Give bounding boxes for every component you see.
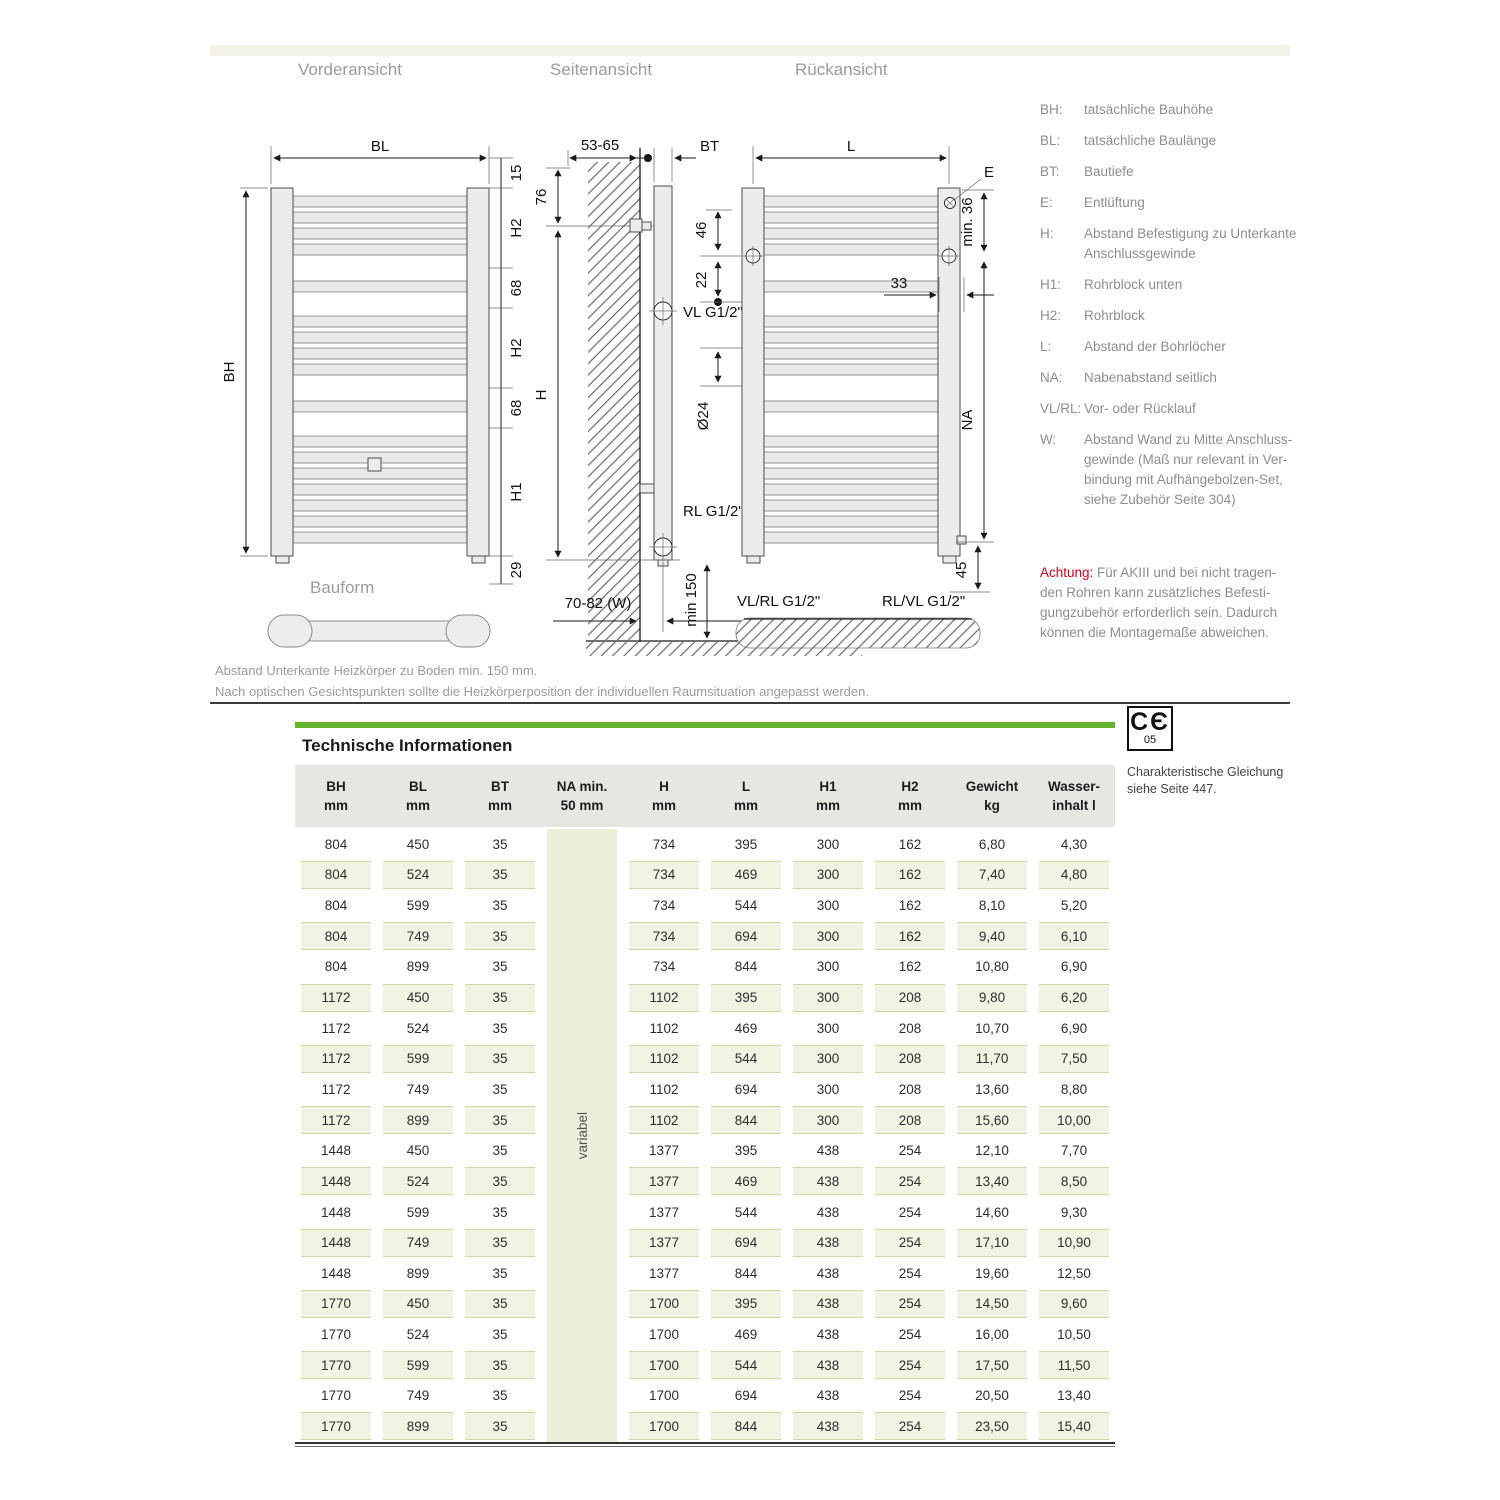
cell-l: 395 xyxy=(711,831,781,857)
legend-key: H1: xyxy=(1040,275,1084,295)
cell-h1: 300 xyxy=(793,954,863,980)
cell-na-spacer xyxy=(547,893,617,919)
cell-wasserinhalt: 7,50 xyxy=(1039,1045,1109,1073)
technical-info-table: Technische Informationen BH mm BL mm BT … xyxy=(295,722,1115,1447)
column-header-name: H2 xyxy=(869,777,951,796)
table-accent-bar xyxy=(295,722,1115,728)
cell-l: 694 xyxy=(711,1229,781,1257)
ce-number: 05 xyxy=(1129,735,1171,746)
cell-bl: 749 xyxy=(383,1229,453,1257)
dim-label-68-bot: 68 xyxy=(508,400,525,417)
cell-bt: 35 xyxy=(465,893,535,919)
legend-text: Abstand der Bohrlöcher xyxy=(1084,337,1226,357)
cell-h1: 300 xyxy=(793,1045,863,1073)
dim-label-53-65: 53-65 xyxy=(581,137,619,154)
table-title: Technische Informationen xyxy=(295,736,1115,756)
cell-bl: 749 xyxy=(383,1383,453,1409)
cell-h1: 438 xyxy=(793,1383,863,1409)
table-row: 804 899 35 734 844 300 162 10,80 6,90 xyxy=(295,952,1115,983)
column-header: Wasser- inhalt l xyxy=(1033,765,1115,827)
column-header-unit: mm xyxy=(623,796,705,815)
legend-item: NA: Nabenabstand seitlich xyxy=(1040,368,1305,388)
legend-item: BT: Bautiefe xyxy=(1040,162,1305,182)
cell-wasserinhalt: 9,30 xyxy=(1039,1199,1109,1225)
cell-na-spacer xyxy=(547,985,617,1011)
cell-bl: 524 xyxy=(383,1167,453,1195)
column-header-name: BL xyxy=(377,777,459,796)
column-header-unit: mm xyxy=(295,796,377,815)
cell-bt: 35 xyxy=(465,1229,535,1257)
cell-bt: 35 xyxy=(465,831,535,857)
cell-gewicht: 10,80 xyxy=(957,954,1027,980)
cell-na-spacer xyxy=(547,1230,617,1256)
dim-label-min36: min. 36 xyxy=(959,197,976,246)
legend-key: VL/RL: xyxy=(1040,399,1084,419)
dim-label-bl: BL xyxy=(371,138,389,155)
cell-h2: 254 xyxy=(875,1199,945,1225)
legend-item: BH: tatsächliche Bauhöhe xyxy=(1040,100,1305,120)
na-variable-band: variabel xyxy=(547,829,617,1442)
cell-gewicht: 15,60 xyxy=(957,1106,1027,1134)
label-vent-e: E xyxy=(984,164,994,181)
cell-h2: 162 xyxy=(875,861,945,889)
cell-h1: 300 xyxy=(793,1076,863,1102)
cell-bh: 1172 xyxy=(301,1015,371,1041)
column-header-unit: 50 mm xyxy=(541,796,623,815)
cell-bt: 35 xyxy=(465,1260,535,1286)
dim-label-w: 70-82 (W) xyxy=(565,595,632,612)
cell-bh: 1172 xyxy=(301,984,371,1012)
column-header-name: H xyxy=(623,777,705,796)
cell-bh: 1448 xyxy=(301,1167,371,1195)
datasheet-page: Vorderansicht Seitenansicht Rückansicht xyxy=(0,0,1500,1500)
cell-na-spacer xyxy=(547,1076,617,1102)
cell-gewicht: 17,50 xyxy=(957,1351,1027,1379)
cell-bh: 1172 xyxy=(301,1076,371,1102)
cell-bh: 1448 xyxy=(301,1229,371,1257)
cell-wasserinhalt: 15,40 xyxy=(1039,1412,1109,1440)
column-header: H1 mm xyxy=(787,765,869,827)
table-row: 1770 524 35 1700 469 438 254 16,00 10,50 xyxy=(295,1319,1115,1350)
column-header-name: BH xyxy=(295,777,377,796)
table-row: 1172 450 35 1102 395 300 208 9,80 6,20 xyxy=(295,982,1115,1013)
cell-h1: 300 xyxy=(793,922,863,950)
cell-bl: 749 xyxy=(383,1076,453,1102)
legend-key: H: xyxy=(1040,224,1084,264)
cell-h: 1102 xyxy=(629,1106,699,1134)
cell-l: 544 xyxy=(711,893,781,919)
cell-gewicht: 13,40 xyxy=(957,1167,1027,1195)
cell-h1: 300 xyxy=(793,1015,863,1041)
table-row: 1770 450 35 1700 395 438 254 14,50 9,60 xyxy=(295,1289,1115,1320)
cell-h: 1700 xyxy=(629,1412,699,1440)
column-header-name: NA min. xyxy=(541,777,623,796)
cell-h1: 438 xyxy=(793,1199,863,1225)
cell-wasserinhalt: 9,60 xyxy=(1039,1290,1109,1318)
cell-h: 1377 xyxy=(629,1138,699,1164)
cell-wasserinhalt: 6,90 xyxy=(1039,954,1109,980)
column-header-unit: mm xyxy=(377,796,459,815)
cell-bh: 1770 xyxy=(301,1412,371,1440)
cell-l: 469 xyxy=(711,1167,781,1195)
cell-gewicht: 14,60 xyxy=(957,1199,1027,1225)
cell-bh: 804 xyxy=(301,831,371,857)
cell-h: 1377 xyxy=(629,1199,699,1225)
cell-bh: 1172 xyxy=(301,1045,371,1073)
cell-na-spacer xyxy=(547,1383,617,1409)
table-row: 1770 599 35 1700 544 438 254 17,50 11,50 xyxy=(295,1350,1115,1381)
cell-bt: 35 xyxy=(465,1351,535,1379)
cell-bl: 450 xyxy=(383,1290,453,1318)
warning-label: Achtung: xyxy=(1040,565,1093,580)
cell-na-spacer xyxy=(547,1322,617,1348)
cell-l: 694 xyxy=(711,1076,781,1102)
legend-key: BL: xyxy=(1040,131,1084,151)
cell-gewicht: 23,50 xyxy=(957,1412,1027,1440)
column-header-name: H1 xyxy=(787,777,869,796)
cell-wasserinhalt: 11,50 xyxy=(1039,1351,1109,1379)
column-header: Gewicht kg xyxy=(951,765,1033,827)
warning-note: Achtung: Für AKIII und bei nicht tragen-… xyxy=(1040,543,1302,643)
rear-view-drawing: L E 46 22 xyxy=(693,138,994,648)
cell-h2: 162 xyxy=(875,922,945,950)
cell-bl: 599 xyxy=(383,1199,453,1225)
column-header-name: Wasser- xyxy=(1033,777,1115,796)
column-header-name: BT xyxy=(459,777,541,796)
dim-label-29: 29 xyxy=(508,562,525,579)
cell-gewicht: 19,60 xyxy=(957,1260,1027,1286)
cell-l: 844 xyxy=(711,954,781,980)
cell-h: 1700 xyxy=(629,1322,699,1348)
cell-bh: 1770 xyxy=(301,1351,371,1379)
cell-h1: 300 xyxy=(793,861,863,889)
table-row: 1172 599 35 1102 544 300 208 11,70 7,50 xyxy=(295,1043,1115,1074)
ce-letters: CЄ xyxy=(1129,709,1171,735)
cell-l: 395 xyxy=(711,1138,781,1164)
cell-bl: 524 xyxy=(383,861,453,889)
column-header: H mm xyxy=(623,765,705,827)
cell-h: 1102 xyxy=(629,1076,699,1102)
column-header-unit: mm xyxy=(705,796,787,815)
dim-label-dia24: Ø24 xyxy=(695,402,712,430)
legend: BH: tatsächliche Bauhöhe BL: tatsächlich… xyxy=(1040,100,1305,521)
table-row: 804 524 35 734 469 300 162 7,40 4,80 xyxy=(295,860,1115,891)
column-header-unit: mm xyxy=(869,796,951,815)
table-rows: 804 450 35 734 395 300 162 6,80 4,30 804 xyxy=(295,829,1115,1442)
cell-l: 544 xyxy=(711,1199,781,1225)
cell-h1: 300 xyxy=(793,1106,863,1134)
legend-text: Rohrblock unten xyxy=(1084,275,1182,295)
cell-bt: 35 xyxy=(465,1199,535,1225)
cell-h: 1102 xyxy=(629,1045,699,1073)
cell-h: 1700 xyxy=(629,1290,699,1318)
cell-na-spacer xyxy=(547,923,617,949)
cell-h1: 300 xyxy=(793,893,863,919)
cell-gewicht: 6,80 xyxy=(957,831,1027,857)
column-header: BL mm xyxy=(377,765,459,827)
cell-wasserinhalt: 4,30 xyxy=(1039,831,1109,857)
cell-bh: 1448 xyxy=(301,1138,371,1164)
dim-label-l: L xyxy=(847,138,855,155)
dim-label-bh: BH xyxy=(221,362,238,383)
cell-bt: 35 xyxy=(465,1290,535,1318)
cell-l: 694 xyxy=(711,922,781,950)
footnote-line-2: Nach optischen Gesichtspunkten sollte di… xyxy=(215,681,869,702)
column-header: H2 mm xyxy=(869,765,951,827)
dim-label-76: 76 xyxy=(533,189,550,206)
cell-na-spacer xyxy=(547,1168,617,1194)
cell-gewicht: 9,40 xyxy=(957,922,1027,950)
cell-wasserinhalt: 6,10 xyxy=(1039,922,1109,950)
cell-l: 544 xyxy=(711,1351,781,1379)
cell-h2: 254 xyxy=(875,1412,945,1440)
cell-bh: 804 xyxy=(301,954,371,980)
cell-gewicht: 14,50 xyxy=(957,1290,1027,1318)
column-header-name: L xyxy=(705,777,787,796)
cell-l: 395 xyxy=(711,1290,781,1318)
cell-bl: 599 xyxy=(383,1045,453,1073)
cell-gewicht: 11,70 xyxy=(957,1045,1027,1073)
cell-na-spacer xyxy=(547,954,617,980)
dim-label-46: 46 xyxy=(693,222,710,239)
cell-h: 1102 xyxy=(629,984,699,1012)
cell-na-spacer xyxy=(547,1352,617,1378)
table-row: 1172 749 35 1102 694 300 208 13,60 8,80 xyxy=(295,1074,1115,1105)
cell-bl: 599 xyxy=(383,893,453,919)
cell-h1: 438 xyxy=(793,1138,863,1164)
cell-bl: 524 xyxy=(383,1322,453,1348)
cell-h1: 438 xyxy=(793,1322,863,1348)
ce-caption: Charakteristische Gleichung siehe Seite … xyxy=(1127,764,1307,798)
cell-gewicht: 17,10 xyxy=(957,1229,1027,1257)
table-row: 804 599 35 734 544 300 162 8,10 5,20 xyxy=(295,890,1115,921)
table-body: variabel 804 450 35 734 395 300 162 6,80 xyxy=(295,829,1115,1444)
dim-label-15: 15 xyxy=(508,165,525,182)
cell-h: 1377 xyxy=(629,1229,699,1257)
cell-wasserinhalt: 8,80 xyxy=(1039,1076,1109,1102)
cell-h: 1102 xyxy=(629,1015,699,1041)
table-row: 1448 599 35 1377 544 438 254 14,60 9,30 xyxy=(295,1197,1115,1228)
cell-h2: 254 xyxy=(875,1351,945,1379)
legend-text: Nabenabstand seitlich xyxy=(1084,368,1217,388)
cell-l: 544 xyxy=(711,1045,781,1073)
cell-h: 734 xyxy=(629,893,699,919)
legend-item: H1: Rohrblock unten xyxy=(1040,275,1305,295)
dim-label-22: 22 xyxy=(693,272,710,289)
legend-key: BH: xyxy=(1040,100,1084,120)
legend-key: W: xyxy=(1040,430,1084,510)
cell-h: 734 xyxy=(629,954,699,980)
dim-label-bt: BT xyxy=(700,138,719,155)
cell-bh: 1172 xyxy=(301,1106,371,1134)
cell-h2: 254 xyxy=(875,1138,945,1164)
cell-wasserinhalt: 10,50 xyxy=(1039,1322,1109,1348)
cell-bh: 1770 xyxy=(301,1383,371,1409)
legend-text: Entlüftung xyxy=(1084,193,1145,213)
cell-wasserinhalt: 4,80 xyxy=(1039,861,1109,889)
legend-item: VL/RL: Vor- oder Rücklauf xyxy=(1040,399,1305,419)
cell-bt: 35 xyxy=(465,1322,535,1348)
cell-bl: 749 xyxy=(383,922,453,950)
table-row: 1448 524 35 1377 469 438 254 13,40 8,50 xyxy=(295,1166,1115,1197)
cell-h1: 438 xyxy=(793,1351,863,1379)
cell-h1: 438 xyxy=(793,1167,863,1195)
label-rl-connection: RL G1/2" xyxy=(683,503,744,520)
cell-h1: 438 xyxy=(793,1260,863,1286)
cell-bt: 35 xyxy=(465,1383,535,1409)
legend-text: tatsächliche Bauhöhe xyxy=(1084,100,1213,120)
cell-bt: 35 xyxy=(465,954,535,980)
cell-bh: 1448 xyxy=(301,1199,371,1225)
column-header: BT mm xyxy=(459,765,541,827)
cell-na-spacer xyxy=(547,1046,617,1072)
cell-bh: 1770 xyxy=(301,1290,371,1318)
cell-gewicht: 7,40 xyxy=(957,861,1027,889)
table-row: 1172 899 35 1102 844 300 208 15,60 10,00 xyxy=(295,1105,1115,1136)
cell-bh: 804 xyxy=(301,922,371,950)
cell-bt: 35 xyxy=(465,1076,535,1102)
cell-h2: 162 xyxy=(875,893,945,919)
cell-gewicht: 20,50 xyxy=(957,1383,1027,1409)
cell-h2: 254 xyxy=(875,1229,945,1257)
dim-label-45: 45 xyxy=(953,562,970,579)
cell-gewicht: 13,60 xyxy=(957,1076,1027,1102)
cell-l: 469 xyxy=(711,1015,781,1041)
cell-h: 1700 xyxy=(629,1351,699,1379)
cell-l: 469 xyxy=(711,861,781,889)
dim-label-h1: H1 xyxy=(508,482,525,501)
dim-label-h2-mid: H2 xyxy=(508,338,525,357)
cell-h2: 208 xyxy=(875,1045,945,1073)
cell-wasserinhalt: 12,50 xyxy=(1039,1260,1109,1286)
cell-bl: 599 xyxy=(383,1351,453,1379)
column-header: NA min. 50 mm xyxy=(541,765,623,827)
cell-wasserinhalt: 10,90 xyxy=(1039,1229,1109,1257)
cell-bh: 1448 xyxy=(301,1260,371,1286)
dim-label-68-top: 68 xyxy=(508,280,525,297)
cell-wasserinhalt: 8,50 xyxy=(1039,1167,1109,1195)
cell-l: 844 xyxy=(711,1260,781,1286)
cell-h2: 254 xyxy=(875,1322,945,1348)
cell-na-spacer xyxy=(547,831,617,857)
cell-wasserinhalt: 10,00 xyxy=(1039,1106,1109,1134)
cell-gewicht: 12,10 xyxy=(957,1138,1027,1164)
cell-bt: 35 xyxy=(465,922,535,950)
bauform-cross-section xyxy=(268,615,490,647)
cell-bh: 1770 xyxy=(301,1322,371,1348)
ce-mark-icon: CЄ 05 xyxy=(1127,706,1173,751)
cell-h2: 208 xyxy=(875,1106,945,1134)
cell-wasserinhalt: 13,40 xyxy=(1039,1383,1109,1409)
column-header-unit: mm xyxy=(459,796,541,815)
table-row: 1770 899 35 1700 844 438 254 23,50 15,40 xyxy=(295,1411,1115,1442)
column-header: L mm xyxy=(705,765,787,827)
table-row: 804 749 35 734 694 300 162 9,40 6,10 xyxy=(295,921,1115,952)
cell-bt: 35 xyxy=(465,984,535,1012)
legend-item: BL: tatsächliche Baulänge xyxy=(1040,131,1305,151)
dim-label-na: NA xyxy=(959,410,976,431)
section-separator-line xyxy=(210,702,1290,704)
cell-l: 395 xyxy=(711,984,781,1012)
label-rlvl-connection: RL/VL G1/2" xyxy=(882,593,965,610)
cell-h: 1377 xyxy=(629,1167,699,1195)
cell-l: 469 xyxy=(711,1322,781,1348)
legend-item: W: Abstand Wand zu Mitte Anschluss- gewi… xyxy=(1040,430,1305,510)
cell-bt: 35 xyxy=(465,861,535,889)
column-header-name: Gewicht xyxy=(951,777,1033,796)
cell-bt: 35 xyxy=(465,1106,535,1134)
cell-gewicht: 8,10 xyxy=(957,893,1027,919)
cell-na-spacer xyxy=(547,862,617,888)
cell-bt: 35 xyxy=(465,1412,535,1440)
cell-bl: 450 xyxy=(383,1138,453,1164)
cell-bl: 450 xyxy=(383,831,453,857)
legend-key: H2: xyxy=(1040,306,1084,326)
cell-bl: 450 xyxy=(383,984,453,1012)
column-header-unit: inhalt l xyxy=(1033,796,1115,815)
cell-na-spacer xyxy=(547,1413,617,1439)
cell-h1: 300 xyxy=(793,831,863,857)
cell-na-spacer xyxy=(547,1291,617,1317)
cell-h2: 254 xyxy=(875,1290,945,1318)
legend-text: Rohrblock xyxy=(1084,306,1145,326)
drawing-footnotes: Abstand Unterkante Heizkörper zu Boden m… xyxy=(215,660,869,702)
cell-na-spacer xyxy=(547,1138,617,1164)
legend-text: Abstand Befestigung zu Unterkante Anschl… xyxy=(1084,224,1296,264)
cell-h1: 438 xyxy=(793,1290,863,1318)
legend-text: Vor- oder Rücklauf xyxy=(1084,399,1196,419)
cell-bh: 804 xyxy=(301,893,371,919)
cell-bt: 35 xyxy=(465,1138,535,1164)
legend-key: NA: xyxy=(1040,368,1084,388)
cell-bt: 35 xyxy=(465,1015,535,1041)
cell-h: 734 xyxy=(629,861,699,889)
legend-key: E: xyxy=(1040,193,1084,213)
table-row: 1448 450 35 1377 395 438 254 12,10 7,70 xyxy=(295,1135,1115,1166)
cell-h2: 162 xyxy=(875,831,945,857)
cell-wasserinhalt: 6,20 xyxy=(1039,984,1109,1012)
dim-label-min150: min 150 xyxy=(683,573,700,626)
column-header-unit: kg xyxy=(951,796,1033,815)
cell-h2: 162 xyxy=(875,954,945,980)
cell-bt: 35 xyxy=(465,1167,535,1195)
cell-gewicht: 10,70 xyxy=(957,1015,1027,1041)
dim-label-h: H xyxy=(533,390,550,401)
cell-na-spacer xyxy=(547,1260,617,1286)
cell-na-spacer xyxy=(547,1107,617,1133)
cell-wasserinhalt: 5,20 xyxy=(1039,893,1109,919)
cell-h2: 208 xyxy=(875,1015,945,1041)
table-row: 1770 749 35 1700 694 438 254 20,50 13,40 xyxy=(295,1381,1115,1412)
legend-key: BT: xyxy=(1040,162,1084,182)
cell-na-spacer xyxy=(547,1015,617,1041)
table-header-row: BH mm BL mm BT mm NA min. 50 mm xyxy=(295,765,1115,827)
cell-h2: 254 xyxy=(875,1260,945,1286)
bauform-label: Bauform xyxy=(310,578,374,598)
cell-bl: 524 xyxy=(383,1015,453,1041)
table-row: 1448 749 35 1377 694 438 254 17,10 10,90 xyxy=(295,1227,1115,1258)
footnote-line-1: Abstand Unterkante Heizkörper zu Boden m… xyxy=(215,660,869,681)
legend-text: Bautiefe xyxy=(1084,162,1134,182)
dim-label-h2-top: H2 xyxy=(508,218,525,237)
cell-bl: 899 xyxy=(383,1412,453,1440)
column-header: BH mm xyxy=(295,765,377,827)
cell-h1: 438 xyxy=(793,1229,863,1257)
legend-text: Abstand Wand zu Mitte Anschluss- gewinde… xyxy=(1084,430,1292,510)
dim-label-33: 33 xyxy=(891,275,908,292)
cell-h2: 208 xyxy=(875,984,945,1012)
cell-h2: 254 xyxy=(875,1383,945,1409)
